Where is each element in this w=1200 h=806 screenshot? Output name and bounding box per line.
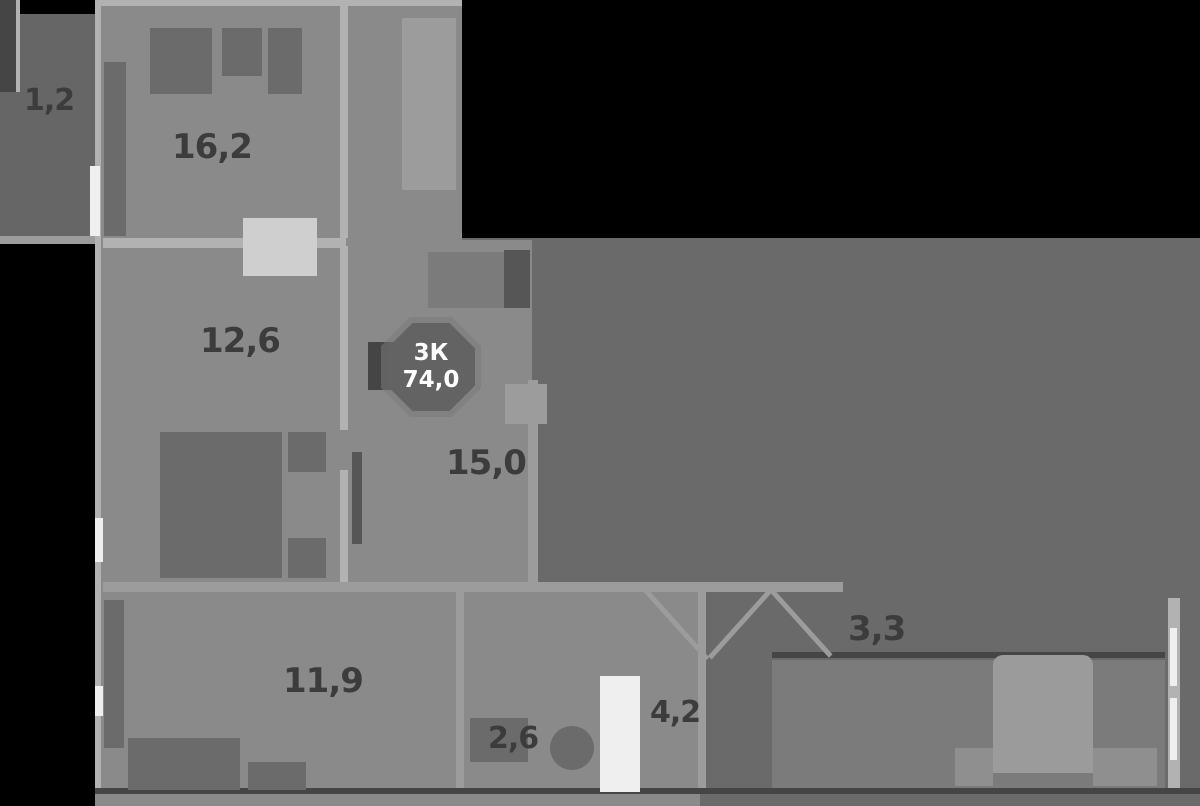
wall-vertical-3 [340, 470, 348, 592]
furniture-bedside-2 [1093, 748, 1157, 786]
window-right-1 [1170, 628, 1177, 686]
apartment-badge[interactable]: 3К 74,0 [387, 323, 475, 411]
kitchen-island [505, 384, 547, 424]
furniture-wardrobe-2 [222, 28, 262, 76]
room-label-living-room: 15,0 [446, 446, 526, 480]
furniture-bed-neighbor [993, 655, 1093, 773]
furniture-bed-room2 [160, 432, 282, 578]
badge-type-label: 3К [414, 340, 449, 367]
wall-top [95, 0, 462, 6]
floorplan-canvas: 1,2 16,2 12,6 15,0 11,9 4,2 2,6 3,3 3К 7… [0, 0, 1200, 806]
wall-bath-left [456, 592, 464, 792]
wall-balcony-bottom [0, 236, 95, 244]
furniture-bedside-1 [955, 748, 993, 786]
window-left-2 [95, 686, 103, 716]
window-right-2 [1170, 698, 1177, 760]
wall-vertical-2 [340, 246, 348, 430]
stair-shaft [402, 18, 456, 190]
window-balcony [90, 166, 100, 236]
furniture-coat-rack [104, 600, 124, 748]
room-label-hallway: 11,9 [283, 664, 363, 698]
wall-hall-top [103, 582, 843, 592]
room-label-balcony-left: 1,2 [24, 86, 74, 116]
shaft-door-white [600, 676, 640, 792]
badge-area-label: 74,0 [403, 367, 460, 394]
furniture-closet-left [104, 62, 126, 236]
neighbor-zone-right [462, 238, 1200, 592]
window-left-1 [95, 518, 103, 562]
furniture-nightstand-2 [288, 538, 326, 578]
room-label-loggia-right: 3,3 [848, 612, 905, 646]
furniture-hall-cabinet-1 [128, 738, 240, 790]
furniture-nightstand-1 [288, 432, 326, 472]
fixture-toilet [550, 726, 594, 770]
room-label-bathroom: 4,2 [650, 698, 700, 728]
radiator-marks [352, 452, 362, 544]
wall-bath-right [698, 592, 706, 788]
room-label-bedroom-middle: 12,6 [200, 324, 280, 358]
furniture-wardrobe-3 [268, 28, 302, 94]
wall-vertical-1 [340, 0, 348, 238]
furniture-wardrobe-1 [150, 28, 212, 94]
wall-corner-line [16, 0, 20, 92]
duct-shaft [504, 250, 530, 308]
furniture-table [243, 218, 317, 276]
room-label-wc: 2,6 [488, 724, 538, 754]
room-label-bedroom-top: 16,2 [172, 130, 252, 164]
wall-left [95, 6, 101, 792]
wall-window-right [1168, 598, 1180, 790]
kitchen-fixture [428, 252, 504, 308]
furniture-hall-cabinet-2 [248, 762, 306, 790]
